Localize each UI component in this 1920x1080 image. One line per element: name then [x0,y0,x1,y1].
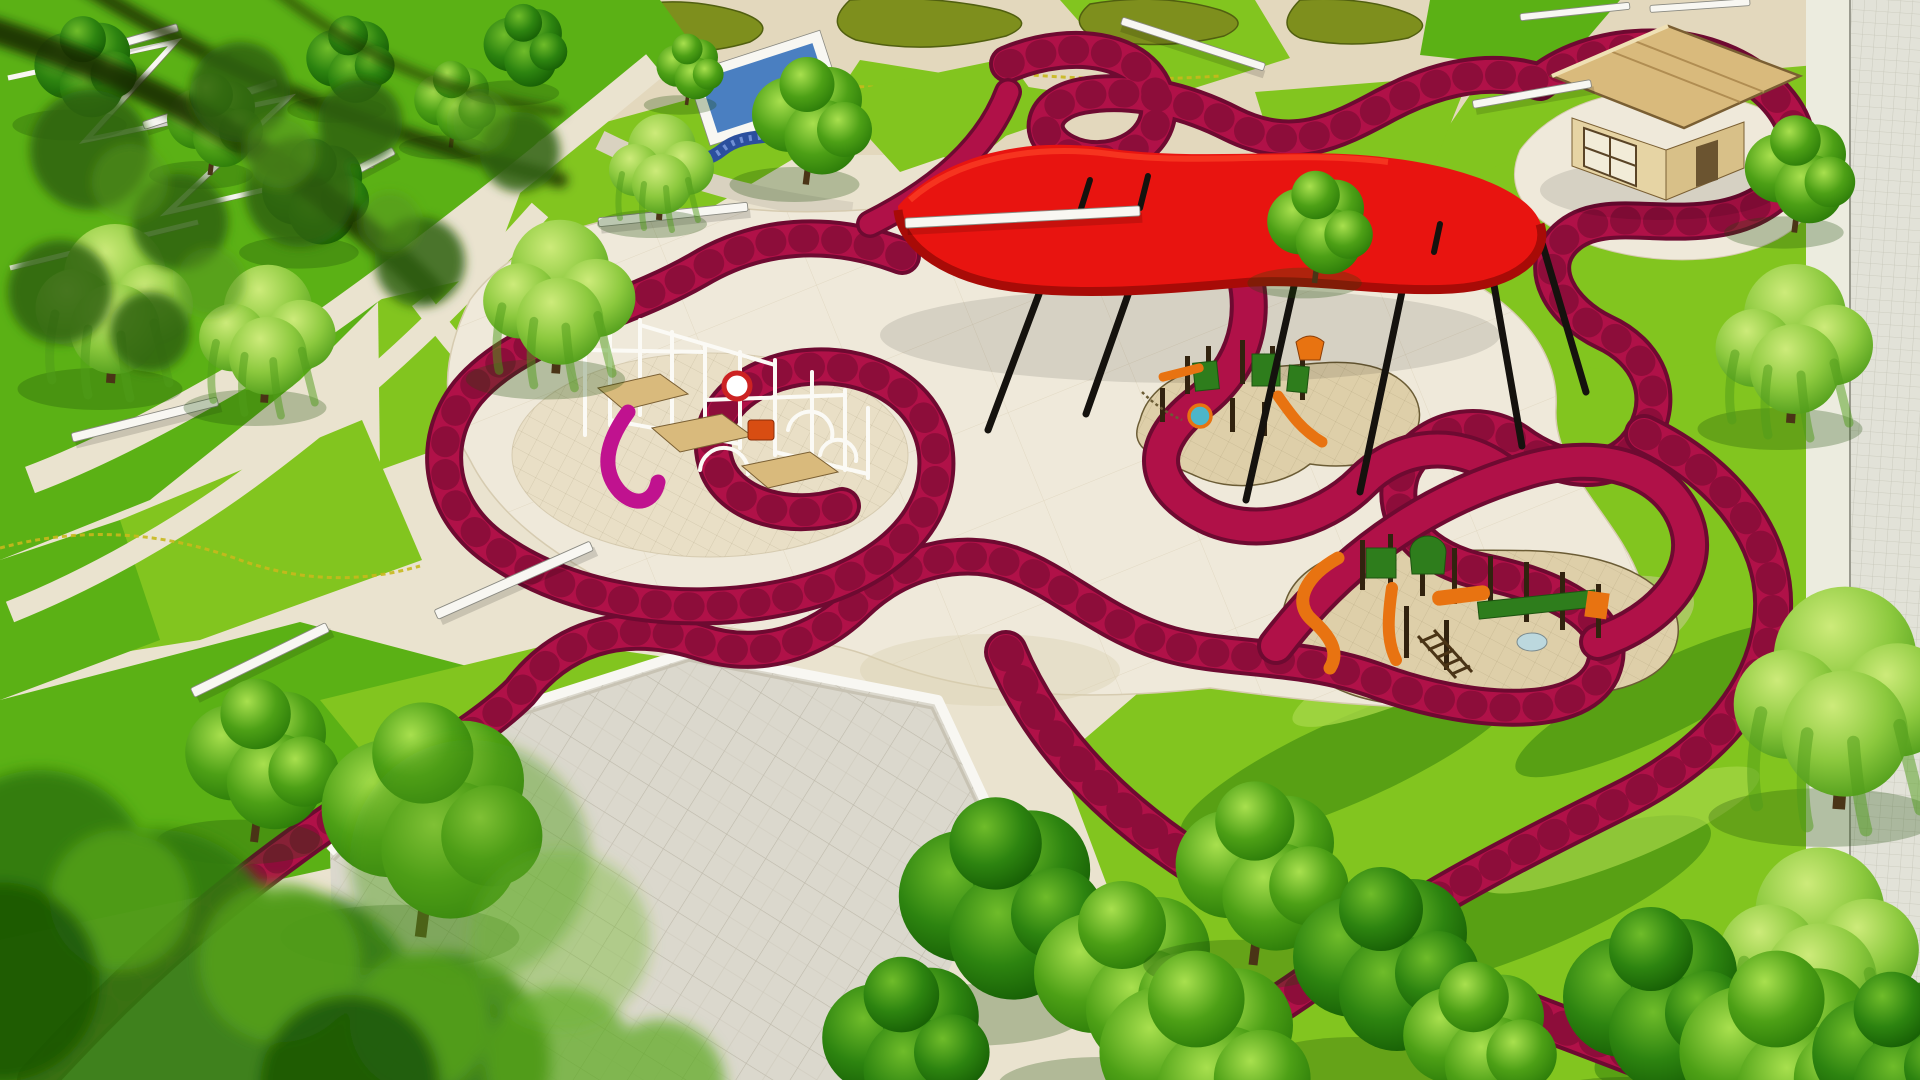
porthole-panel [1189,405,1211,427]
park-scene-svg [0,0,1920,1080]
orange-panel [1584,591,1609,620]
ring-toy [724,373,750,399]
orange-panel [748,420,774,440]
hut-door [1696,140,1718,187]
green-panel [1366,548,1396,578]
green-arch [1410,536,1446,574]
dish-panel [1517,633,1547,651]
orange-topper [1296,336,1324,360]
park-rendering [0,0,1920,1080]
green-panel [1287,365,1310,393]
